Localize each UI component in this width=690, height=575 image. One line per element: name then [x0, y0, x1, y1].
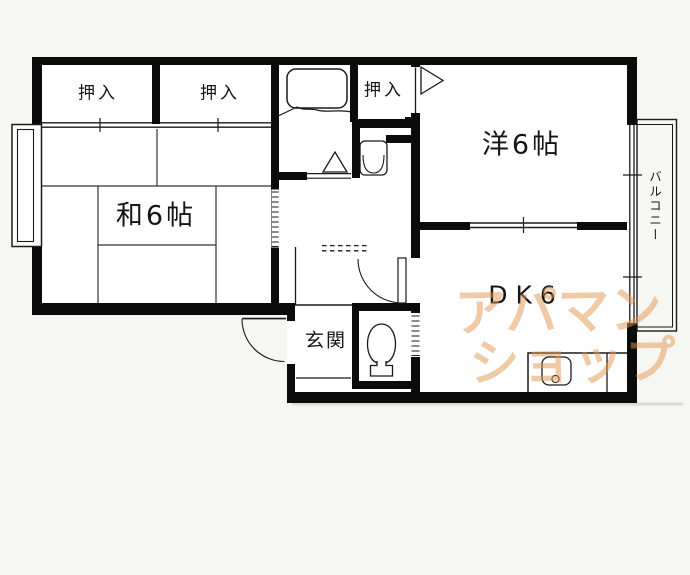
washitsu-window: [12, 125, 42, 247]
room-label-oshiire-3: 押入: [364, 76, 404, 101]
room-label-oshiire-1: 押入: [78, 79, 118, 104]
toilet-icon: [368, 324, 396, 376]
room-label-washitsu: 和6帖: [116, 194, 196, 233]
room-label-balcony: バルコニー: [645, 170, 664, 243]
room-label-dk: DK6: [488, 281, 564, 310]
toilet-wall-hatch: [411, 313, 420, 357]
entrance-door-swing: [242, 319, 286, 362]
kitchen-sink-icon: [528, 353, 630, 393]
room-label-youshitsu: 洋6帖: [482, 123, 562, 162]
washbasin-icon: [360, 141, 387, 175]
washitsu-hall-sliding-door: [272, 190, 280, 248]
floorplan: 押入 押入 押入 和6帖 洋6帖 DK6 玄関 バルコニー アパマン ショップ: [0, 0, 690, 575]
room-label-genkan: 玄関: [305, 326, 347, 353]
room-label-oshiire-2: 押入: [200, 79, 240, 104]
